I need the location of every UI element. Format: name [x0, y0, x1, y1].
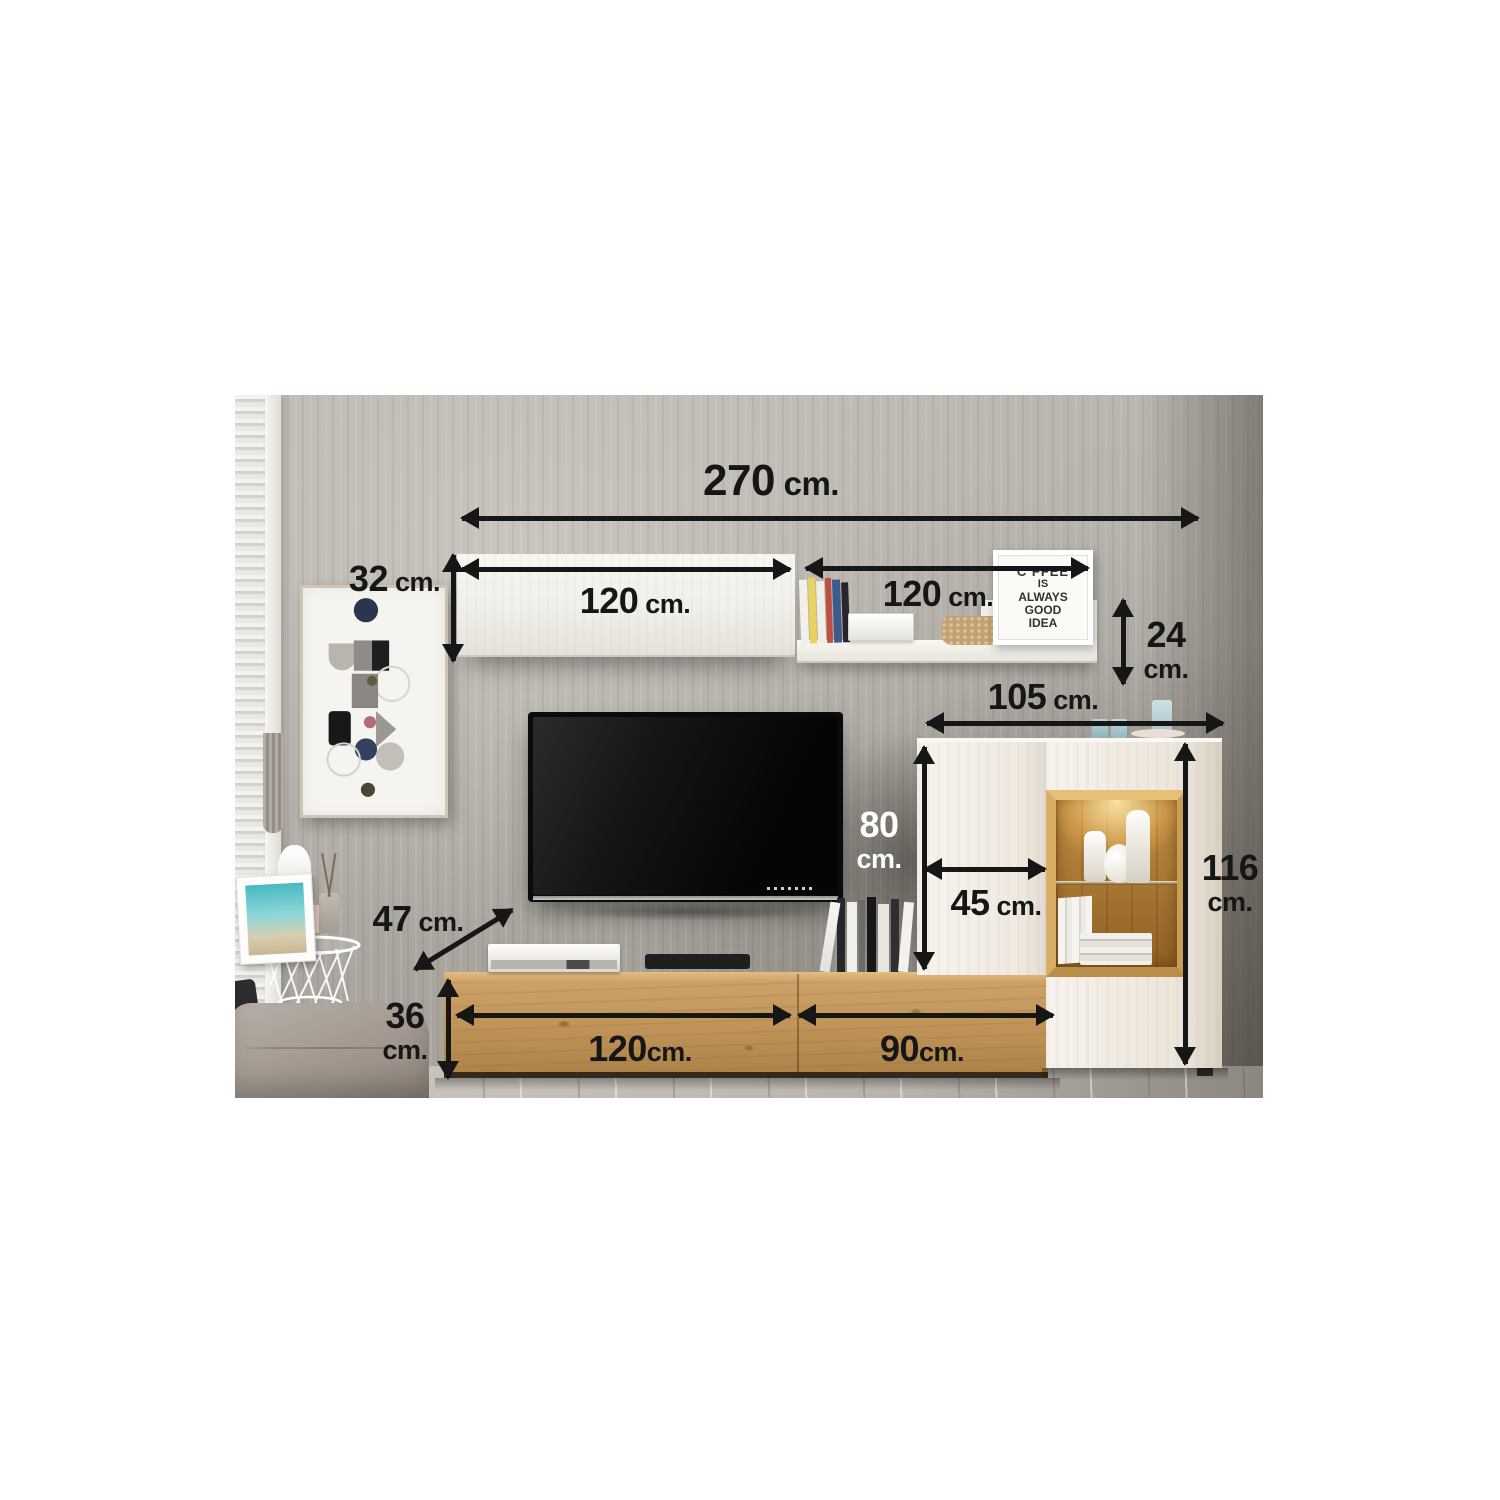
book-spine [878, 904, 889, 972]
dimension-label-cabinet-width: 105 cm. [943, 679, 1143, 715]
tv-status-leds [767, 887, 813, 890]
dimension-label-stand-height: 36cm. [365, 998, 445, 1064]
arrow-total-width [462, 516, 1198, 521]
arrow-stand-left-width [457, 1013, 790, 1018]
dimension-label-shelf-depth: 32 cm. [290, 561, 440, 597]
wall-mounted-tv [528, 712, 843, 902]
decor-plate [1131, 729, 1185, 738]
dimension-label-cabinet-upper-height: 80cm. [839, 807, 919, 873]
beach-photo-frame [236, 873, 317, 965]
tv-wall-shadow [555, 903, 825, 921]
tv-screen [533, 717, 838, 895]
book-spine [867, 897, 876, 972]
dimension-label-shelf-left-width: 120 cm. [535, 583, 735, 619]
furniture-dimension-diagram: C FFEE IS ALWAYS GOOD IDEA [235, 395, 1263, 1098]
poster-line: IDEA [1029, 617, 1058, 630]
arrow-stand-right-width [799, 1013, 1053, 1018]
arrow-shelf-right-width [806, 566, 1088, 571]
dimension-label-stand-depth: 47 cm. [318, 901, 518, 937]
window-shutters [235, 395, 265, 1066]
window-magazine-stack [1080, 933, 1152, 965]
arrow-shelf-depth [451, 555, 456, 661]
dimension-label-cabinet-door-width: 45 cm. [896, 885, 1096, 921]
cabinet-left-door [917, 738, 1046, 975]
tv-bottom-bar [533, 896, 838, 900]
shelf-media-box [848, 613, 914, 641]
dvd-player [488, 944, 620, 972]
cabinet-floor-shadow [1042, 1068, 1228, 1080]
dimension-label-shelf-right-width: 120 cm. [838, 576, 1038, 612]
arrow-cabinet-width [927, 721, 1223, 726]
book-spine [859, 900, 865, 972]
arrow-shelf-left-width [462, 567, 790, 572]
dimension-label-shelf-right-height: 24cm. [1126, 617, 1206, 683]
book-spine [847, 902, 857, 972]
tv-stand-floor-shadow [435, 1078, 1060, 1090]
dimension-label-stand-left-width: 120cm. [540, 1031, 740, 1067]
abstract-art [303, 588, 445, 815]
hanging-fabric [263, 733, 283, 833]
dimension-label-stand-right-width: 90cm. [822, 1031, 1022, 1067]
white-vase-tall [1126, 810, 1150, 883]
dimension-label-total-width: 270 cm. [571, 459, 971, 503]
abstract-art-poster [300, 585, 448, 818]
media-device [645, 954, 750, 969]
white-vase-bottle [1084, 831, 1106, 881]
dimension-label-cabinet-height: 116cm. [1185, 850, 1263, 916]
cabinet-display-window [1046, 790, 1187, 977]
arrow-stand-height [446, 980, 451, 1078]
arrow-cabinet-door-width [925, 867, 1045, 872]
